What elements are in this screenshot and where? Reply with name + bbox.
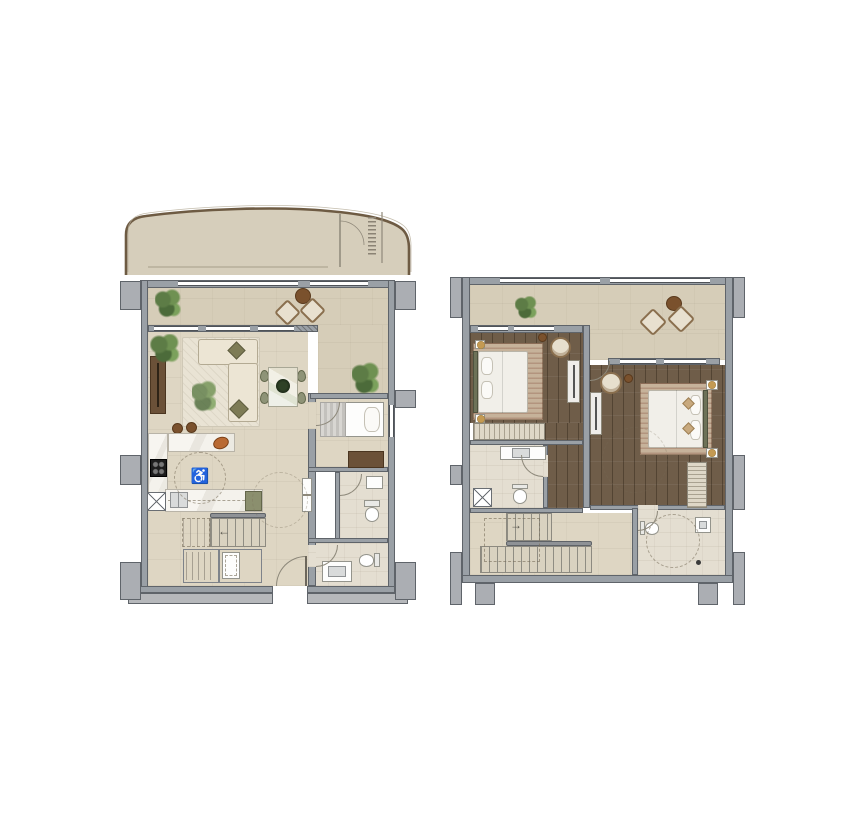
window <box>478 326 508 331</box>
bedside-lamp <box>477 341 485 349</box>
closet-unit <box>687 462 707 508</box>
basin-bowl <box>699 521 707 529</box>
pillar <box>450 465 462 485</box>
stair-dashed-outline <box>484 518 540 562</box>
cooktop <box>150 459 167 477</box>
washbasin <box>366 476 383 489</box>
bedside-lamp <box>708 449 716 457</box>
bed-pillow <box>481 381 493 399</box>
closet-divider <box>218 549 220 583</box>
shower-room-door-opening <box>308 545 316 567</box>
service-shaft <box>473 488 492 507</box>
service-shaft <box>147 492 166 511</box>
exterior-wall-right <box>725 277 733 583</box>
window <box>178 281 298 286</box>
window <box>206 326 250 331</box>
bedroom-window <box>389 405 394 437</box>
shower-drain <box>328 566 346 577</box>
pillar <box>120 562 141 600</box>
bar-stool <box>186 422 197 433</box>
upper-level-plan: → <box>450 265 745 610</box>
stair-direction-arrow: ← <box>218 525 258 537</box>
potted-plant <box>155 289 181 319</box>
potted-plant <box>352 362 379 396</box>
bedroom1-corridor-floor <box>545 423 583 508</box>
floor-plan-sheet: ♿ ← <box>0 0 852 831</box>
window <box>500 278 600 283</box>
bed-headboard <box>703 390 708 448</box>
exterior-wall-bottom <box>462 575 733 583</box>
pillar <box>120 281 141 310</box>
pillar <box>395 562 416 600</box>
curved-balcony <box>118 205 418 275</box>
table-centerpiece <box>276 379 290 393</box>
toilet-bowl <box>359 554 374 567</box>
dining-chair <box>297 392 306 404</box>
toilet-tank <box>374 553 380 567</box>
lower-level-plan: ♿ ← <box>118 205 418 610</box>
toilet-tank <box>364 500 380 507</box>
terrace-floor-right <box>590 330 725 360</box>
terrace-floor <box>148 288 388 325</box>
wardrobe-unit <box>473 423 545 440</box>
armchair <box>600 372 622 394</box>
foundation-band <box>128 593 273 604</box>
window <box>664 359 706 364</box>
sink-divider <box>178 493 179 507</box>
window <box>154 326 198 331</box>
turning-circle <box>602 427 668 493</box>
armchair <box>550 337 571 358</box>
entry-door-leaf <box>305 556 307 586</box>
tv-console-line <box>157 363 159 407</box>
exterior-wall-left <box>141 280 148 593</box>
pillar <box>450 277 462 318</box>
duvet-crease <box>676 390 677 448</box>
bedroom-divider-wall <box>583 325 590 508</box>
tv-console-line <box>595 397 597 430</box>
pillar <box>733 277 745 318</box>
window <box>514 326 554 331</box>
pillar <box>475 583 495 605</box>
floor-plant <box>192 380 216 414</box>
toilet-bowl <box>513 489 527 504</box>
side-table <box>624 374 633 383</box>
accessibility-icon: ♿ <box>190 469 210 487</box>
tv-console-line <box>573 365 575 398</box>
bedroom1-bath-wall <box>470 440 583 445</box>
pillar <box>733 552 745 605</box>
bedside-lamp <box>708 381 716 389</box>
dresser <box>348 451 384 468</box>
exterior-wall-bottom-left <box>140 586 273 593</box>
door-handle <box>696 560 701 565</box>
bedroom-door-opening <box>308 402 316 429</box>
pillar <box>395 390 416 408</box>
washing-machine-door <box>225 555 237 576</box>
window <box>620 359 656 364</box>
pillar <box>395 281 416 310</box>
bathroom-divider-wall <box>308 538 388 543</box>
pillar <box>120 455 141 485</box>
foundation-band <box>307 593 408 604</box>
stair-dashed-extension <box>182 518 210 547</box>
bathroom2-door-opening <box>638 505 658 510</box>
dining-chair <box>297 370 306 382</box>
wall-hatch <box>296 325 318 332</box>
duvet-crease <box>502 351 503 413</box>
window <box>258 326 294 331</box>
exterior-wall-left <box>462 277 470 583</box>
window <box>310 281 368 286</box>
pillar <box>450 552 462 605</box>
balcony-floor <box>126 209 409 275</box>
window <box>610 278 710 283</box>
exterior-wall-bottom-right <box>307 586 395 593</box>
pillar <box>698 583 718 605</box>
turning-circle <box>252 472 308 528</box>
bed-pillow <box>364 407 380 432</box>
bed-pillow <box>481 357 493 375</box>
bedside-lamp <box>477 415 485 423</box>
potted-plant <box>515 296 537 320</box>
pillar <box>733 455 745 510</box>
toilet-bowl <box>365 507 379 522</box>
potted-plant <box>150 334 180 364</box>
hanging-space <box>186 552 214 580</box>
side-table <box>538 333 547 342</box>
